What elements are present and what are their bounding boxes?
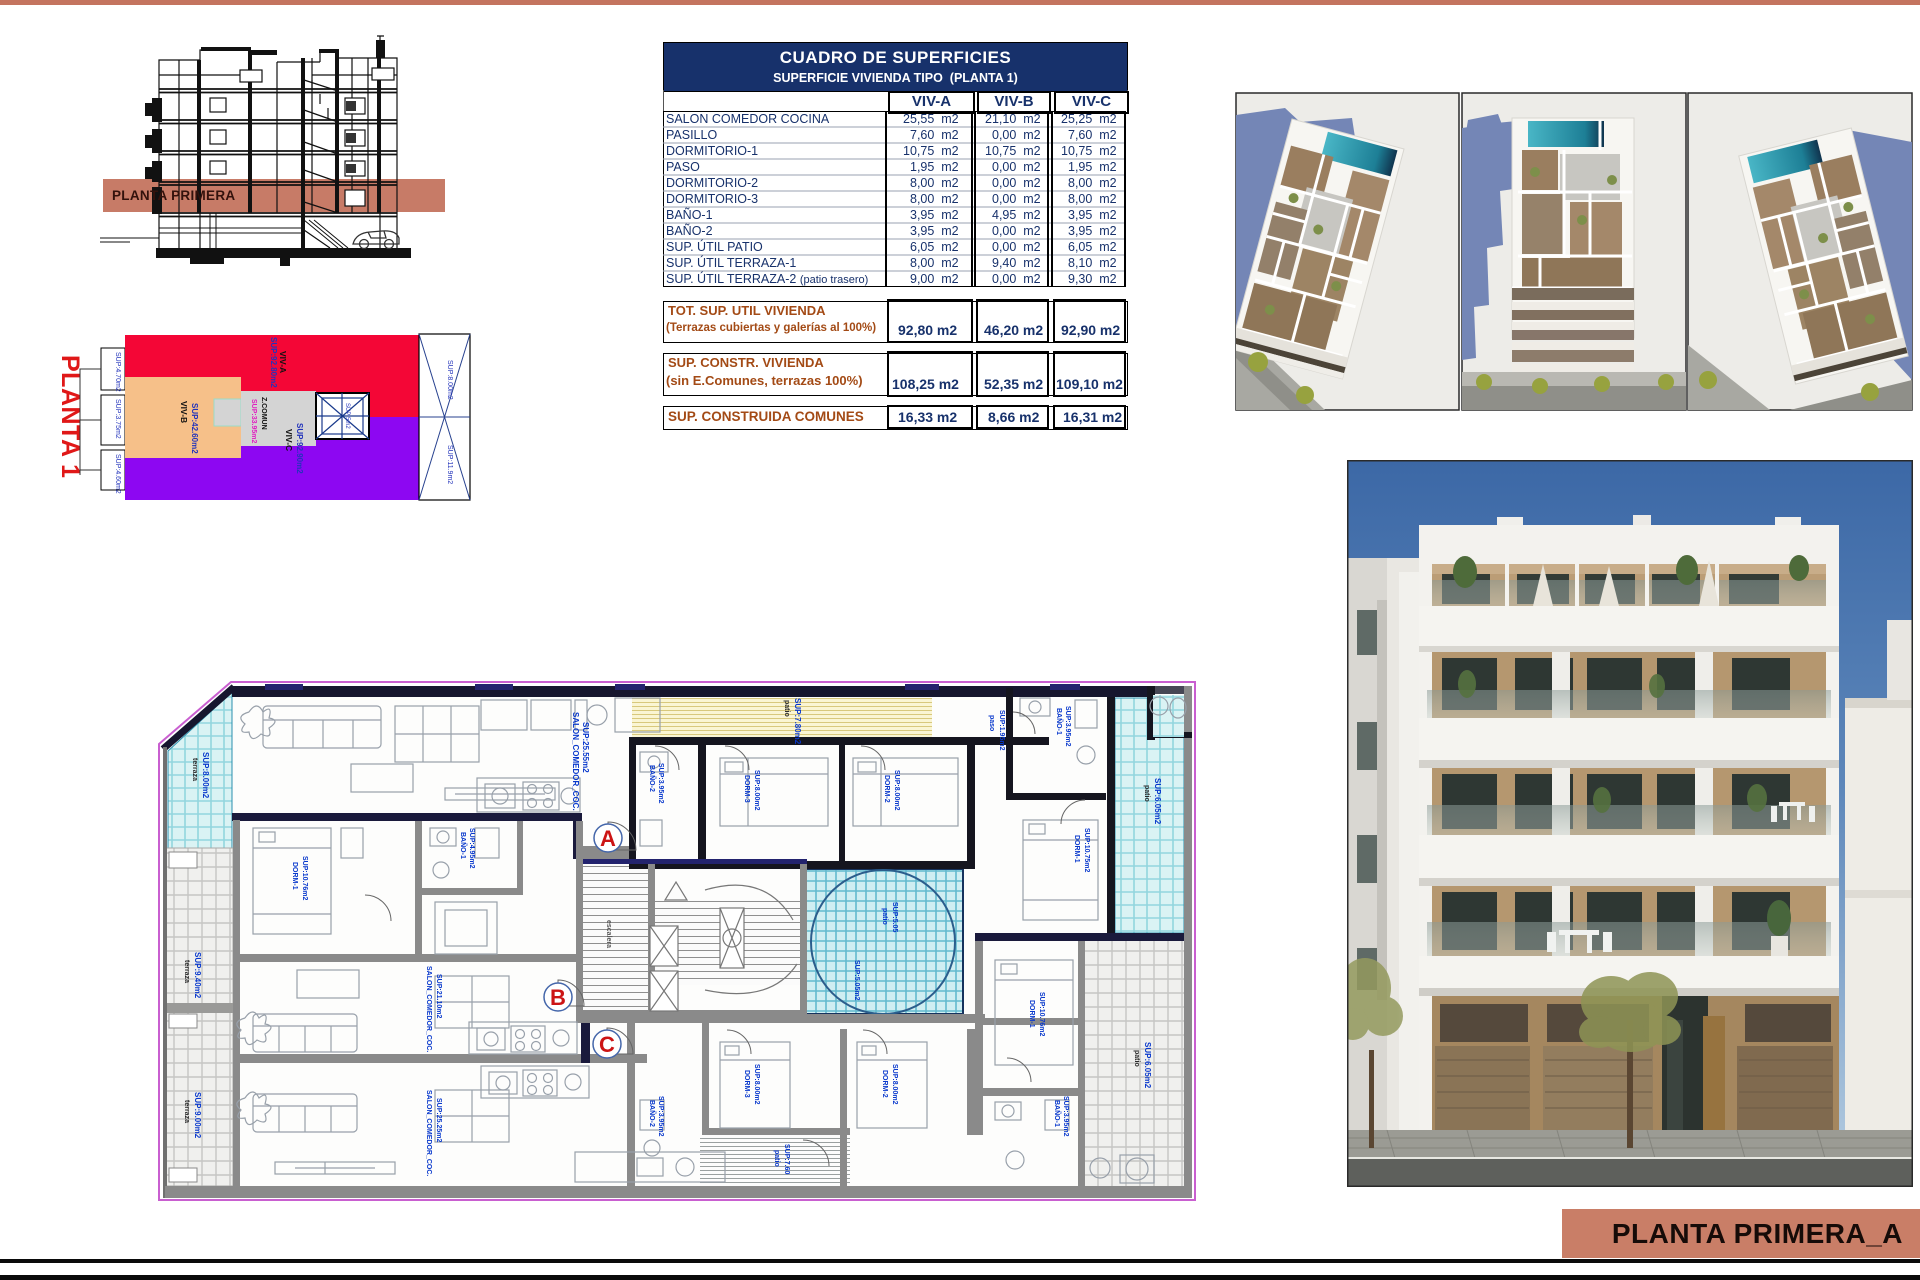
svg-text:SUP:21.10m2: SUP:21.10m2 — [435, 974, 442, 1018]
svg-text:VIV-A: VIV-A — [278, 351, 288, 373]
svg-text:SUP:5m2: SUP:5m2 — [344, 403, 350, 429]
svg-text:SUP:7.80m2: SUP:7.80m2 — [793, 698, 802, 745]
svg-text:SUP:8.00m2: SUP:8.00m2 — [893, 770, 900, 811]
svg-text:SUP:3.95m2: SUP:3.95m2 — [657, 1096, 664, 1137]
svg-text:BAÑO-2: BAÑO-2 — [648, 1100, 657, 1127]
svg-text:PLANTA 1: PLANTA 1 — [56, 355, 84, 478]
svg-text:A: A — [600, 826, 616, 851]
svg-text:SUP:4.60m2: SUP:4.60m2 — [114, 454, 121, 494]
svg-text:VIV-B: VIV-B — [179, 401, 189, 423]
svg-text:SALON_COMEDOR_COC.: SALON_COMEDOR_COC. — [425, 966, 432, 1052]
svg-text:SUP:33.95m2: SUP:33.95m2 — [250, 399, 257, 443]
svg-text:SUP:8.00m2: SUP:8.00m2 — [891, 1064, 898, 1105]
svg-text:SUP:3.95m2: SUP:3.95m2 — [1064, 706, 1071, 747]
svg-text:SUP:9.40m2: SUP:9.40m2 — [193, 952, 202, 999]
svg-text:SUP:10.75m2: SUP:10.75m2 — [1083, 828, 1090, 872]
svg-text:SUP:92.80m2: SUP:92.80m2 — [269, 337, 278, 388]
svg-text:patio: patio — [1133, 1050, 1140, 1067]
svg-text:SUP:6.05m2: SUP:6.05m2 — [1153, 778, 1162, 825]
svg-text:patio: patio — [881, 908, 888, 925]
svg-text:SUP:6.05m2: SUP:6.05m2 — [1143, 1042, 1152, 1089]
svg-text:patio: patio — [783, 700, 790, 717]
svg-text:DORM-2: DORM-2 — [881, 1070, 888, 1098]
svg-text:SUP:11.9m2: SUP:11.9m2 — [446, 445, 453, 484]
svg-text:patio: patio — [773, 1150, 780, 1167]
svg-text:SUP:25.25m2: SUP:25.25m2 — [435, 1098, 442, 1142]
svg-text:terraza: terraza — [183, 960, 190, 983]
svg-text:BAÑO-1: BAÑO-1 — [1055, 708, 1064, 735]
svg-text:terraza: terraza — [183, 1100, 190, 1123]
svg-text:SUP:4.70m2: SUP:4.70m2 — [114, 352, 121, 392]
svg-text:SUP:5.05: SUP:5.05 — [891, 902, 898, 932]
svg-text:patio: patio — [1143, 785, 1150, 802]
svg-text:paso: paso — [988, 715, 995, 731]
svg-text:SUP:7.60: SUP:7.60 — [783, 1144, 790, 1174]
svg-text:terraza: terraza — [191, 758, 198, 781]
svg-text:SALON_COMEDOR_COC.: SALON_COMEDOR_COC. — [571, 712, 580, 811]
svg-text:C: C — [599, 1032, 615, 1057]
svg-text:SUP:10.76m2: SUP:10.76m2 — [301, 856, 308, 900]
svg-text:SUP:42.60m2: SUP:42.60m2 — [190, 403, 199, 454]
svg-text:escalera: escalera — [605, 920, 612, 948]
svg-text:DORM-2: DORM-2 — [883, 775, 890, 803]
svg-text:DORM-1: DORM-1 — [291, 862, 298, 890]
svg-text:SUP:3.95m2: SUP:3.95m2 — [1062, 1096, 1069, 1137]
svg-text:DORM-1: DORM-1 — [1028, 1000, 1035, 1028]
svg-text:SUP:3.95m2: SUP:3.95m2 — [657, 763, 664, 804]
svg-text:SUP:8.00m2: SUP:8.00m2 — [753, 1064, 760, 1105]
svg-text:SUP:3.75m2: SUP:3.75m2 — [114, 399, 121, 439]
svg-text:SUP:8.00m2: SUP:8.00m2 — [753, 770, 760, 811]
svg-text:SUP:10.76m2: SUP:10.76m2 — [1038, 992, 1045, 1036]
svg-text:SUP:9.00m2: SUP:9.00m2 — [193, 1092, 202, 1139]
svg-text:DORM-3: DORM-3 — [743, 1070, 750, 1098]
svg-text:SUP:4.95m2: SUP:4.95m2 — [468, 828, 475, 869]
svg-text:SUP:8.00m2: SUP:8.00m2 — [446, 360, 453, 400]
svg-text:VIV-C: VIV-C — [284, 429, 294, 451]
svg-text:PLANTA PRIMERA: PLANTA PRIMERA — [112, 188, 235, 203]
svg-text:BAÑO-1: BAÑO-1 — [459, 832, 468, 859]
svg-text:SUP:5.05m2: SUP:5.05m2 — [853, 960, 860, 1001]
svg-text:DORM-1: DORM-1 — [1073, 835, 1080, 863]
svg-text:Z.COMUN: Z.COMUN — [260, 397, 267, 430]
svg-text:B: B — [550, 985, 566, 1010]
svg-text:BAÑO-2: BAÑO-2 — [648, 765, 657, 792]
svg-text:SUP:1.95m2: SUP:1.95m2 — [998, 710, 1005, 751]
svg-text:DORM-3: DORM-3 — [743, 775, 750, 803]
svg-text:SALON_COMEDOR_COC.: SALON_COMEDOR_COC. — [425, 1090, 432, 1176]
svg-text:SUP:8.00m2: SUP:8.00m2 — [201, 752, 210, 799]
svg-text:BAÑO-1: BAÑO-1 — [1053, 1100, 1062, 1127]
svg-text:SUP:25.55m2: SUP:25.55m2 — [581, 722, 590, 773]
svg-text:SUP:92.90m2: SUP:92.90m2 — [295, 423, 304, 474]
